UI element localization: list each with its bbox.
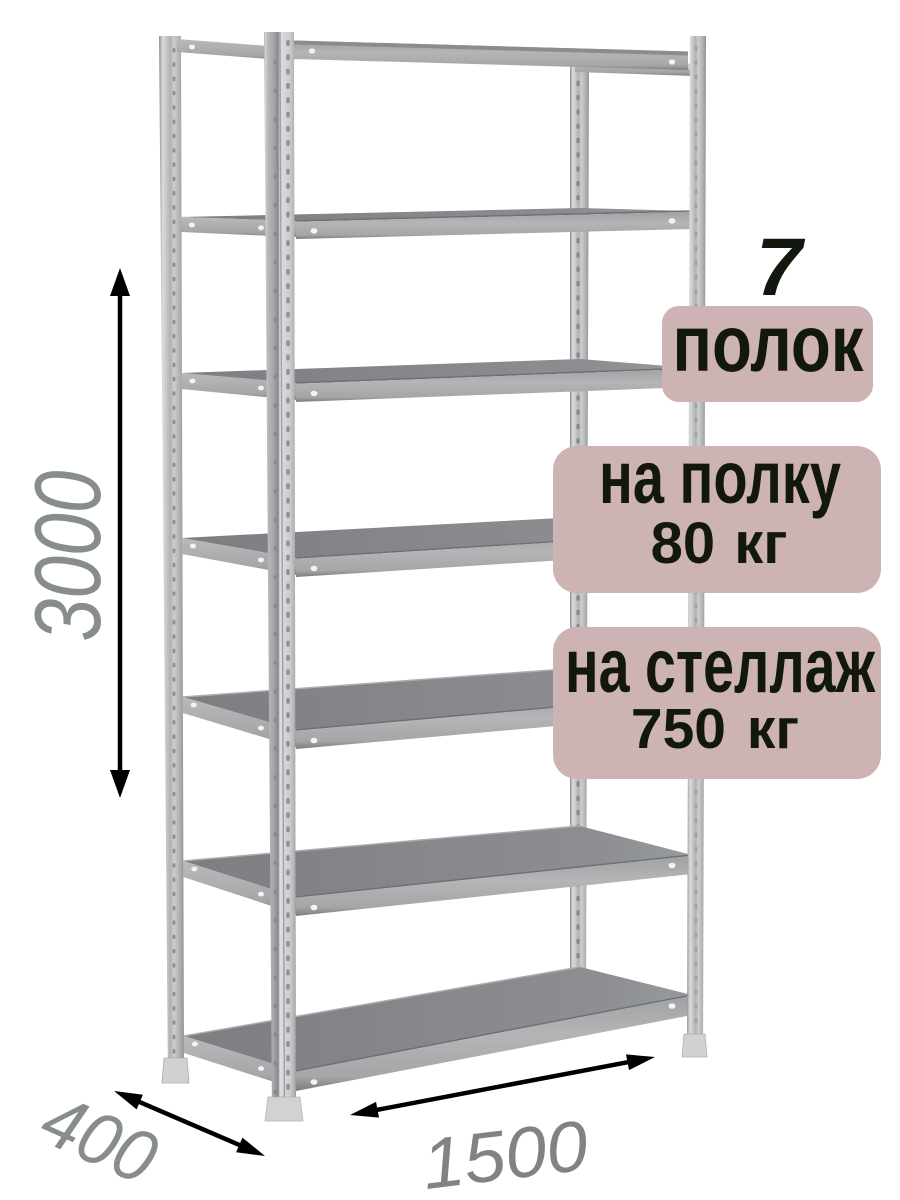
svg-text:3000: 3000	[15, 471, 120, 642]
svg-text:на полку: на полку	[599, 436, 841, 519]
svg-text:750 кг: 750 кг	[631, 697, 799, 761]
svg-text:полок: полок	[673, 299, 865, 388]
svg-text:80 кг: 80 кг	[651, 511, 788, 576]
